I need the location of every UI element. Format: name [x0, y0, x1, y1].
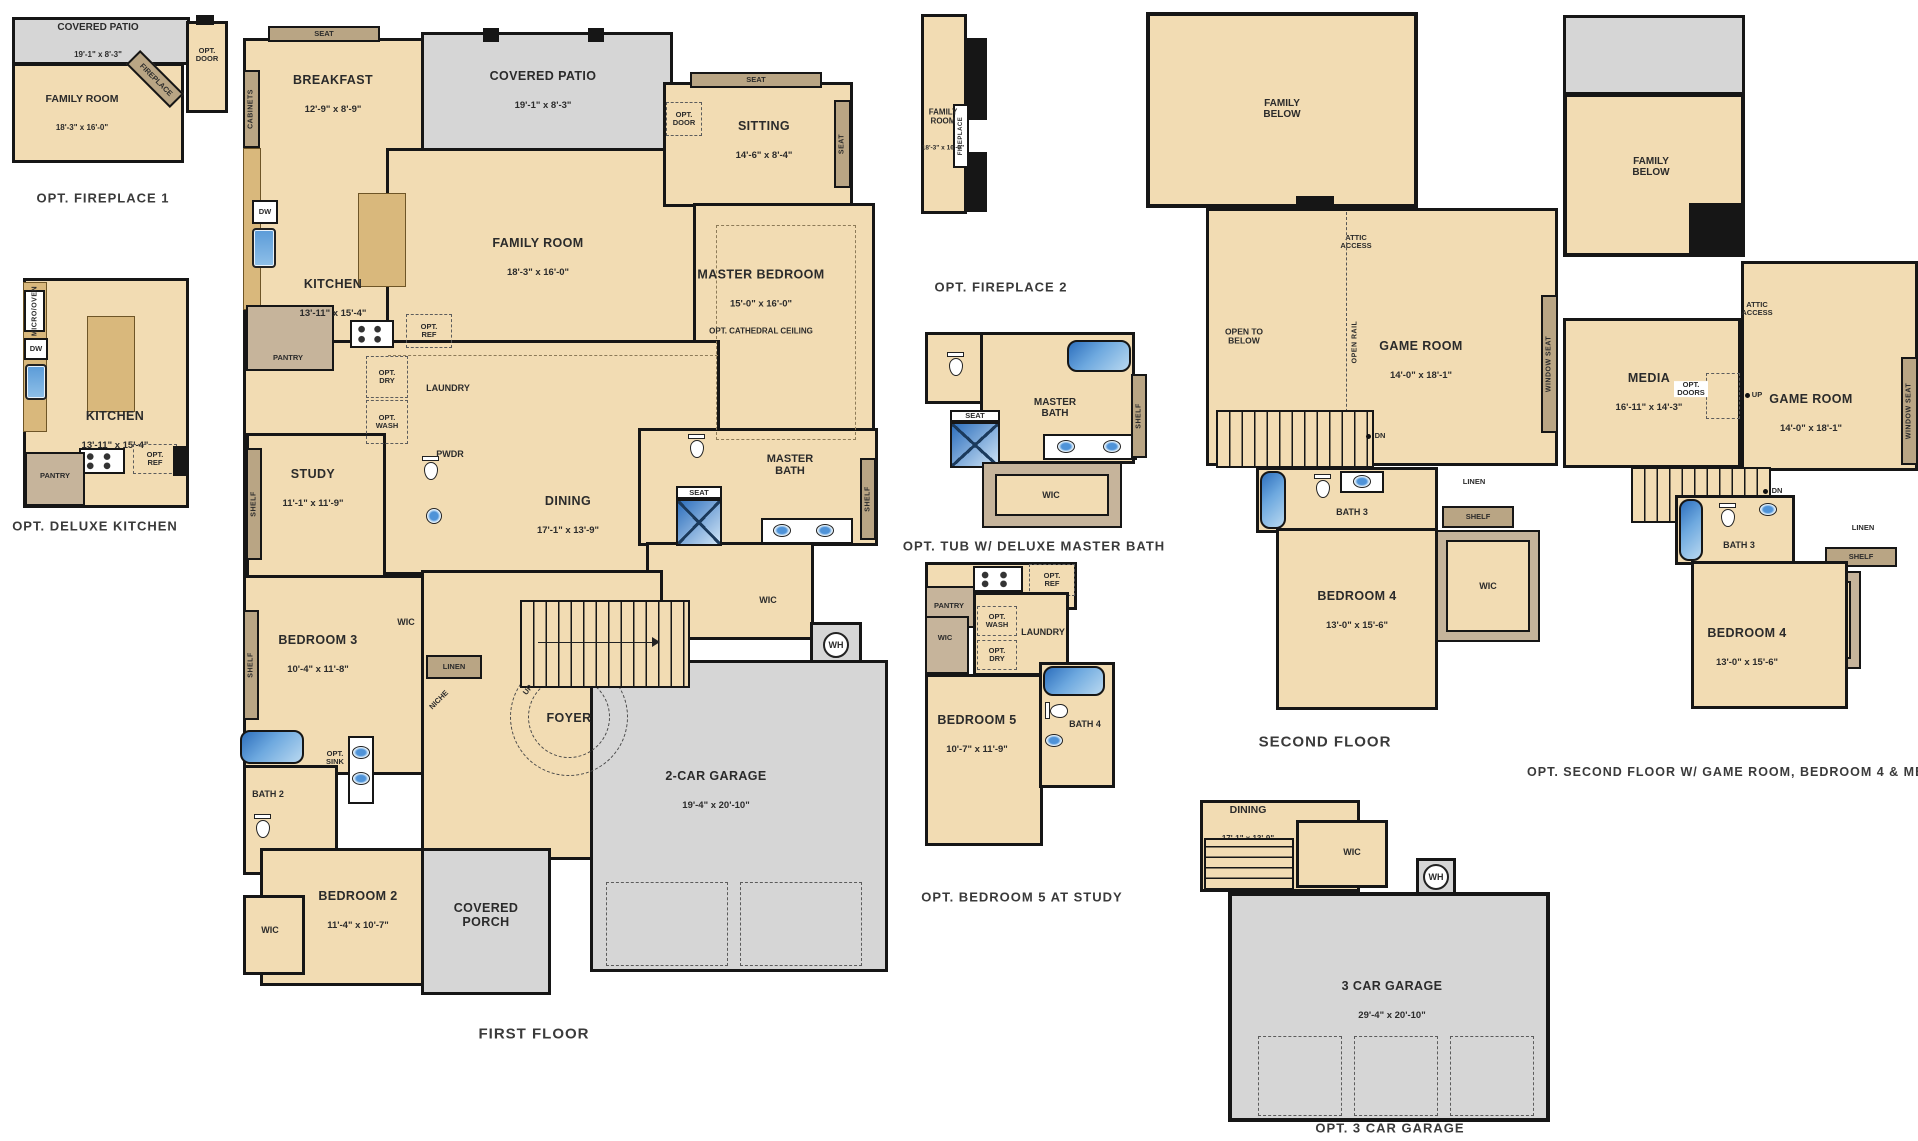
caption-second-floor: SECOND FLOOR	[1259, 734, 1392, 751]
ceiling-line	[388, 355, 718, 356]
opt-sink-label: OPT. SINK	[320, 750, 350, 766]
roof-below-area	[1563, 15, 1745, 95]
micro-oven-label: MICRO/OVEN	[32, 286, 39, 336]
wic-label: WIC	[1343, 847, 1361, 857]
shelf-label: SHELF	[251, 491, 258, 516]
bath4-label: BATH 4	[1068, 719, 1102, 729]
bedroom3-label: BEDROOM 3 10'-4" x 11'-8"	[278, 615, 357, 693]
caption-opt-tub: OPT. TUB W/ DELUXE MASTER BATH	[903, 539, 1165, 554]
sink-icon	[352, 772, 370, 785]
dishwasher-label: DW	[30, 345, 43, 353]
sink-icon	[1045, 734, 1063, 747]
kitchen-sink-icon	[252, 228, 276, 268]
open-rail-line	[1346, 212, 1347, 427]
laundry-label: LAUNDRY	[1021, 627, 1065, 637]
sink-icon	[1103, 440, 1121, 453]
up-marker	[1745, 393, 1750, 398]
shelf-label: SHELF	[1849, 553, 1874, 561]
garage-label: 3 CAR GARAGE 29'-4" x 20'-10"	[1342, 961, 1443, 1039]
stairs-arrow	[538, 642, 653, 643]
plan-opt-3car-garage: DINING 17'-1" x 13'-9" WIC WH 3 CAR GARA…	[1200, 800, 1552, 1130]
plan-second-floor: FAMILY BELOW ATTIC ACCESS OPEN TO BELOW …	[1144, 12, 1564, 757]
opt-door-label: OPT. DOOR	[669, 111, 699, 127]
garage-door	[606, 882, 728, 966]
covered-porch-label: COVERED PORCH	[446, 883, 526, 947]
linen-label: LINEN	[1463, 478, 1486, 486]
master-bedroom-label: MASTER BEDROOM 15'-0" x 16'-0" OPT. CATH…	[696, 249, 826, 354]
toilet-icon	[947, 352, 964, 357]
bedroom5-label: BEDROOM 5 10'-7" x 11'-9"	[937, 695, 1016, 773]
open-rail-label: OPEN RAIL	[1352, 321, 1359, 364]
opt-dry-label: OPT. DRY	[983, 647, 1011, 663]
bathtub-icon	[1260, 471, 1286, 529]
wic-label: WIC	[1042, 490, 1060, 500]
opt-doors-label: OPT. DOORS	[1674, 381, 1708, 397]
master-wic-label: WIC	[759, 595, 777, 605]
toilet-icon	[1314, 474, 1331, 479]
patio-pier	[483, 28, 499, 42]
wall-segment	[173, 446, 189, 476]
dn-marker	[1366, 434, 1371, 439]
side-room-area	[186, 21, 228, 113]
sink-icon	[426, 508, 442, 524]
wall-segment	[967, 38, 987, 120]
kitchen-sink-icon	[25, 364, 47, 400]
water-heater-icon: WH	[823, 632, 849, 658]
bath3-label: BATH 3	[1721, 540, 1757, 550]
wic-label: WIC	[1479, 581, 1497, 591]
plan-opt-fireplace-1: COVERED PATIO 19'-1" x 8'-3" FAMILY ROOM…	[10, 15, 238, 207]
cabinets-label: CABINETS	[248, 89, 255, 129]
toilet-icon	[1719, 503, 1736, 508]
sink-icon	[1353, 475, 1371, 488]
media-label: MEDIA 16'-11" x 14'-3"	[1616, 353, 1683, 431]
toilet-icon	[688, 434, 705, 439]
plan-first-floor: SEAT CABINETS SEAT SEAT OPT. DOOR DW OPT…	[238, 10, 890, 992]
caption-opt-fireplace-1: OPT. FIREPLACE 1	[36, 191, 169, 206]
wall-segment	[196, 15, 214, 25]
bedroom4-label: BEDROOM 4 13'-0" x 15'-6"	[1707, 608, 1786, 686]
opt-ref-label: OPT. REF	[413, 323, 445, 339]
dishwasher-label: DW	[259, 208, 272, 216]
bath3-label: BATH 3	[1334, 507, 1370, 517]
caption-first-floor: FIRST FLOOR	[479, 1026, 590, 1043]
toilet-icon	[254, 814, 271, 819]
caption-opt-deluxe-kitchen: OPT. DELUXE KITCHEN	[12, 519, 178, 534]
dining-label: DINING 17'-1" x 13'-9"	[537, 476, 599, 554]
sink-icon	[816, 524, 834, 537]
game-room-label: GAME ROOM 14'-0" x 18'-1"	[1769, 374, 1852, 452]
sink-icon	[773, 524, 791, 537]
window-seat-label: WINDOW SEAT	[1546, 336, 1553, 392]
bathtub-icon	[240, 730, 304, 764]
wall-segment	[1689, 203, 1745, 257]
garage-label: 2-CAR GARAGE 19'-4" x 20'-10"	[665, 751, 766, 829]
garage-door	[740, 882, 862, 966]
plan-opt-second-floor: FAMILY BELOW ATTIC ACCESS MEDIA 16'-11" …	[1563, 15, 1918, 770]
opt-dry-label: OPT. DRY	[373, 369, 401, 385]
family-room-label: FAMILY ROOM 18'-3" x 16'-0"	[46, 76, 119, 150]
study-label: STUDY 11'-1" x 11'-9"	[282, 449, 343, 527]
covered-patio-label: COVERED PATIO 19'-1" x 8'-3"	[57, 4, 138, 78]
plan-opt-deluxe-kitchen: MICRO/OVEN DW KITCHEN 13'-11" x 15'-4" O…	[15, 278, 230, 536]
shelf-label: SHELF	[865, 486, 872, 511]
opt-doors-box	[1706, 373, 1740, 419]
attic-access-label: ATTIC ACCESS	[1735, 301, 1779, 317]
wall-segment	[967, 152, 987, 212]
garage-door	[1450, 1036, 1534, 1116]
opt-ref-label: OPT. REF	[140, 451, 170, 467]
caption-opt-second-floor: OPT. SECOND FLOOR W/ GAME ROOM, BEDROOM …	[1527, 765, 1918, 779]
opt-wash-label: OPT. WASH	[372, 414, 402, 430]
stairs-arrowhead	[652, 637, 665, 647]
linen-label: LINEN	[443, 663, 466, 671]
pantry-label: PANTRY	[273, 354, 303, 362]
garage-door	[1354, 1036, 1438, 1116]
bedroom2-wic-label: WIC	[261, 925, 279, 935]
bedroom4-label: BEDROOM 4 13'-0" x 15'-6"	[1317, 571, 1396, 649]
family-below-label: FAMILY BELOW	[1250, 80, 1314, 138]
dn-label: DN	[1772, 487, 1783, 495]
shelf-label: SHELF	[1136, 403, 1143, 428]
window-seat-label: WINDOW SEAT	[1906, 383, 1913, 439]
sitting-label: SITTING 14'-6" x 8'-4"	[736, 101, 793, 179]
seat-label: SEAT	[314, 30, 333, 38]
toilet-icon	[1050, 704, 1068, 718]
laundry-label: LAUNDRY	[426, 383, 470, 393]
shelf-label: SHELF	[1466, 513, 1491, 521]
stairs	[1216, 410, 1374, 468]
kitchen-label: KITCHEN 13'-11" x 15'-4"	[300, 259, 367, 337]
bathtub-icon	[1679, 499, 1703, 561]
seat-label: SEAT	[839, 134, 846, 154]
family-below-label: FAMILY BELOW	[1619, 138, 1683, 196]
range-icon	[79, 448, 125, 474]
up-label: UP	[1752, 391, 1762, 399]
garage-door	[1258, 1036, 1342, 1116]
pantry-label: PANTRY	[934, 602, 964, 610]
family-room-label: FAMILY ROOM 18'-3" x 16'-0"	[492, 218, 583, 296]
seat-label: SEAT	[689, 489, 708, 497]
dn-marker	[1763, 489, 1768, 494]
breakfast-label: BREAKFAST 12'-9" x 8'-9"	[293, 55, 373, 133]
wic-area	[1296, 820, 1388, 888]
linen-label: LINEN	[1852, 524, 1875, 532]
pwdr-label: PWDR	[436, 449, 464, 459]
game-room-label: GAME ROOM 14'-0" x 18'-1"	[1379, 321, 1462, 399]
seat-label: SEAT	[746, 76, 765, 84]
water-heater-icon: WH	[1423, 864, 1449, 890]
caption-opt-fireplace-2: OPT. FIREPLACE 2	[934, 280, 1067, 295]
covered-patio-label: COVERED PATIO 19'-1" x 8'-3"	[490, 51, 597, 129]
family-room-label: FAMILY ROOM 18'-3" x 16'-0"	[916, 91, 970, 170]
bedroom3-wic-label: WIC	[397, 617, 415, 627]
plan-opt-fireplace-2: FIREPLACE FAMILY ROOM 18'-3" x 16'-0"	[913, 10, 1063, 295]
attic-access-label: ATTIC ACCESS	[1334, 234, 1378, 250]
wic-label: WIC	[938, 634, 953, 642]
patio-pier	[588, 28, 604, 42]
stairs	[1204, 838, 1294, 890]
foyer-label: FOYER	[546, 693, 591, 743]
pantry-label: PANTRY	[40, 472, 70, 480]
wic-area	[925, 616, 969, 674]
range-icon	[973, 566, 1023, 592]
sink-icon	[1759, 503, 1777, 516]
plan-opt-bedroom5: OPT. REF PANTRY WIC OPT. WASH OPT. DRY L…	[925, 562, 1137, 902]
bath2-label: BATH 2	[249, 789, 287, 799]
caption-opt-bedroom5: OPT. BEDROOM 5 AT STUDY	[921, 890, 1122, 905]
bedroom2-label: BEDROOM 2 11'-4" x 10'-7"	[318, 871, 397, 949]
master-bath-label: MASTER BATH	[755, 435, 825, 495]
caption-opt-3car-garage: OPT. 3 CAR GARAGE	[1315, 1121, 1464, 1136]
master-bath-label: MASTER BATH	[1023, 379, 1087, 437]
plan-opt-tub: MASTER BATH SEAT WIC SHELF	[925, 322, 1165, 540]
opt-door-label: OPT. DOOR	[192, 47, 222, 63]
open-to-below-label: OPEN TO BELOW	[1218, 310, 1270, 365]
shower-icon	[676, 499, 722, 546]
seat-label: SEAT	[965, 412, 984, 420]
dn-label: DN	[1375, 432, 1386, 440]
sink-icon	[1057, 440, 1075, 453]
opt-ref-label: OPT. REF	[1037, 572, 1067, 588]
shelf-label: SHELF	[248, 652, 255, 677]
bathtub-icon	[1043, 666, 1105, 696]
sink-icon	[352, 746, 370, 759]
opt-wash-label: OPT. WASH	[981, 613, 1013, 629]
bathtub-icon	[1067, 340, 1131, 372]
